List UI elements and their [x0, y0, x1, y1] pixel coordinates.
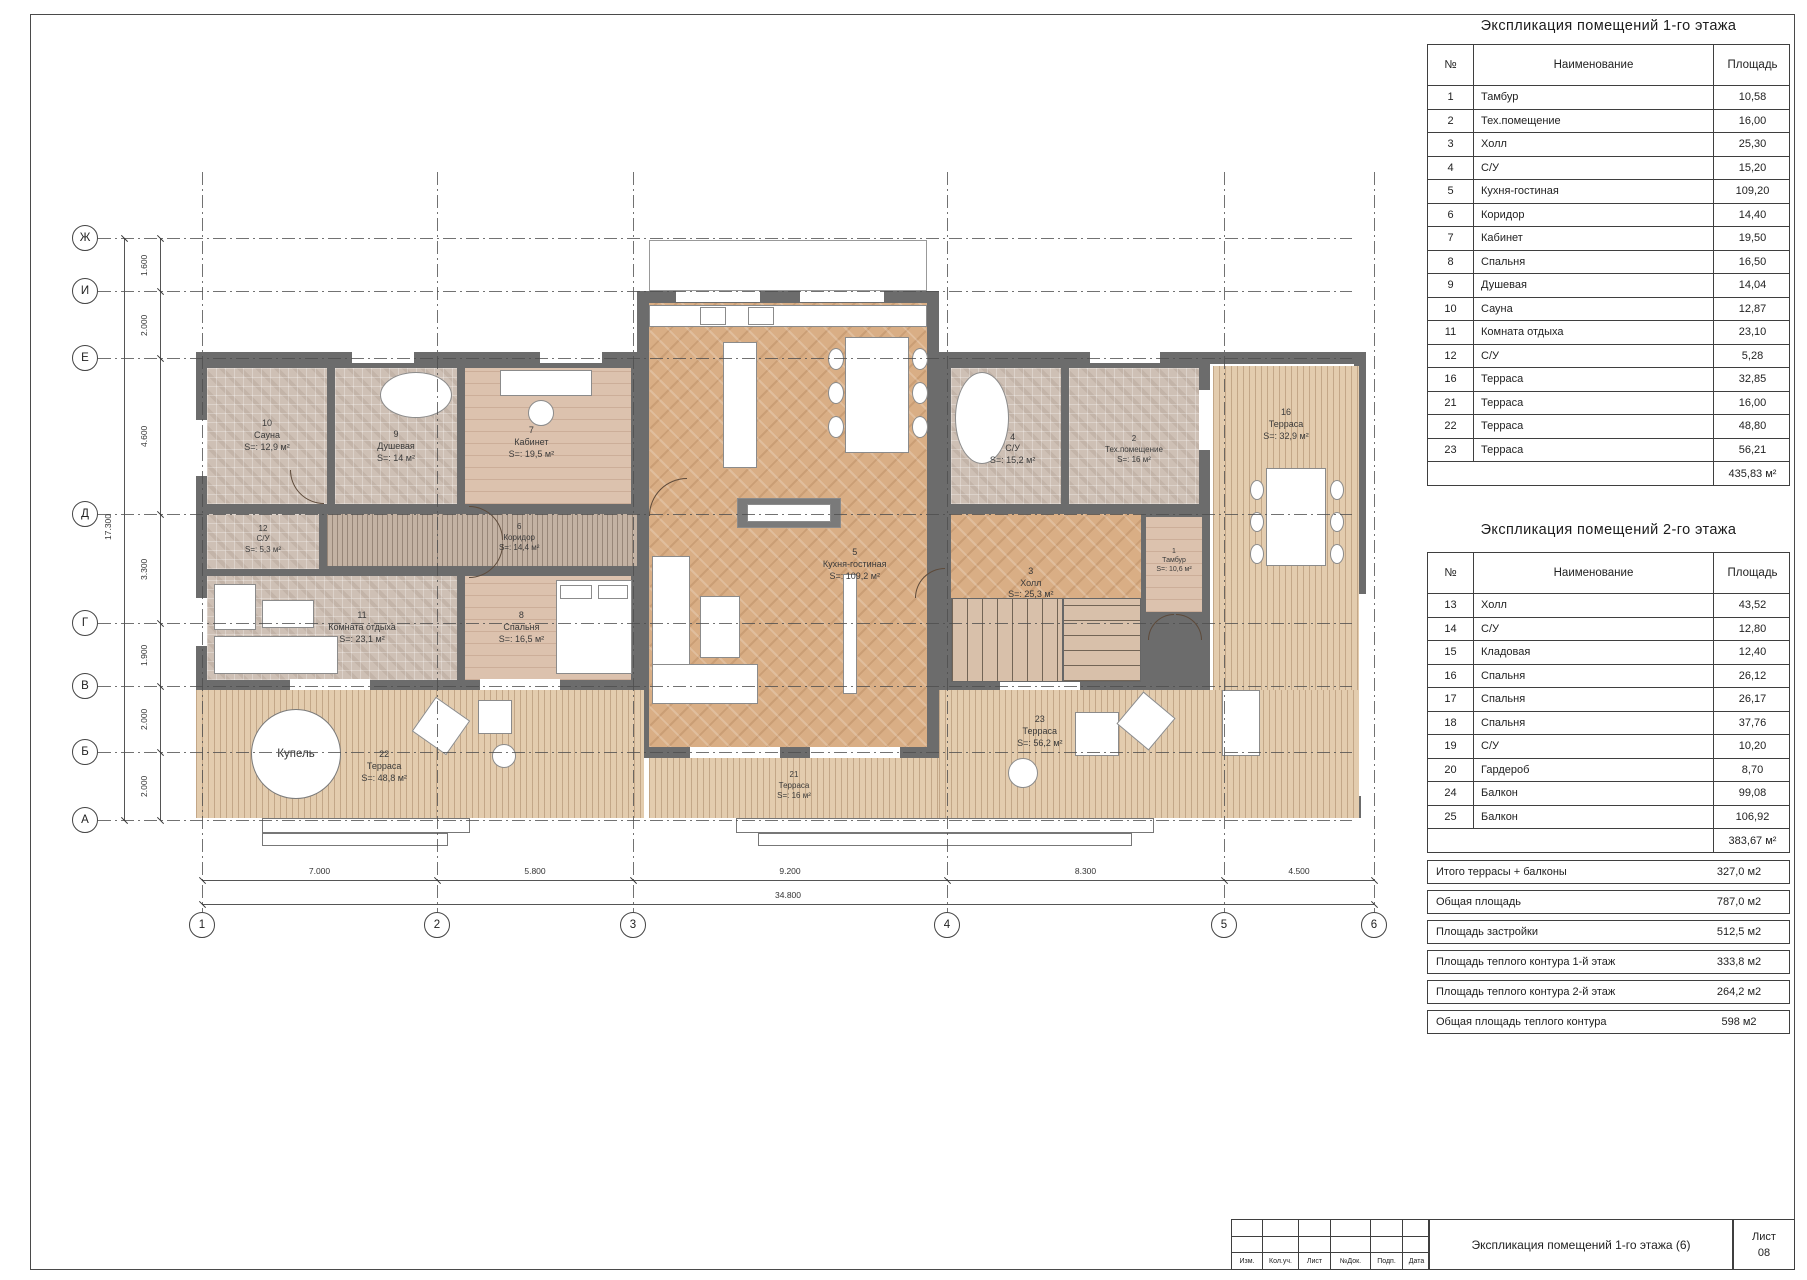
floor2-table: №НаименованиеПлощадь13Холл43,5214С/У12,8…: [1427, 552, 1790, 853]
cell-num: 6: [1428, 204, 1473, 227]
total-spacer: [1428, 829, 1713, 852]
table-row: 4С/У15,20: [1428, 156, 1789, 180]
table-row: 7Кабинет19,50: [1428, 226, 1789, 250]
table-row: 15Кладовая12,40: [1428, 640, 1789, 664]
floor2-total: 383,67 м²: [1713, 829, 1791, 852]
table-row: 20Гардероб8,70: [1428, 758, 1789, 782]
summary-row: Площадь застройки512,5 м2: [1427, 920, 1790, 944]
cell-area: 16,00: [1713, 110, 1791, 133]
axis-line-row-А: [98, 820, 1352, 821]
axis-line-row-И: [98, 291, 1352, 292]
header-cell: Наименование: [1473, 45, 1713, 85]
cell-num: 4: [1428, 157, 1473, 180]
axis-bubble-1: 1: [189, 912, 215, 938]
cell-name: С/У: [1473, 345, 1713, 368]
axis-line-row-Г: [98, 623, 1352, 624]
dim-line-bottom-total: [202, 904, 1374, 905]
cell-area: 109,20: [1713, 180, 1791, 203]
dim-line-left-total: [124, 238, 125, 820]
window-opening: [1199, 390, 1210, 450]
stamp-vline: [1298, 1220, 1299, 1253]
furniture: [652, 664, 758, 704]
furniture: [500, 370, 592, 396]
revision-stamp: Изм.Кол.уч.Лист№Док.Подп.Дата: [1231, 1219, 1429, 1270]
cell-area: 10,58: [1713, 86, 1791, 109]
cell-area: 26,12: [1713, 665, 1791, 688]
stamp-col-3: Лист: [1298, 1253, 1330, 1269]
cell-area: 26,17: [1713, 688, 1791, 711]
stamp-vline: [1402, 1220, 1403, 1253]
table-row: 6Коридор14,40: [1428, 203, 1789, 227]
table-header-row: №НаименованиеПлощадь: [1428, 45, 1789, 85]
axis-bubble-А: А: [72, 807, 98, 833]
axis-line-row-В: [98, 686, 1352, 687]
kupel-circle: Купель: [251, 709, 341, 799]
table-row: 12С/У5,28: [1428, 344, 1789, 368]
stamp-col-2: Кол.уч.: [1262, 1253, 1298, 1269]
cell-num: 21: [1428, 392, 1473, 415]
table-row: 3Холл25,30: [1428, 132, 1789, 156]
table-row: 25Балкон106,92: [1428, 805, 1789, 829]
dim-label-col: 9.200: [765, 866, 815, 876]
furniture: [492, 744, 516, 768]
furniture: [1330, 512, 1344, 532]
window-opening: [676, 291, 760, 302]
table-row: 17Спальня26,17: [1428, 687, 1789, 711]
cell-area: 23,10: [1713, 321, 1791, 344]
stamp-col-6: Дата: [1402, 1253, 1430, 1269]
furniture: [723, 342, 757, 468]
cell-name: С/У: [1473, 618, 1713, 641]
cell-name: Сауна: [1473, 298, 1713, 321]
cell-area: 25,30: [1713, 133, 1791, 156]
cell-num: 14: [1428, 618, 1473, 641]
dim-label-row: 2.000: [139, 770, 149, 802]
furniture: [747, 504, 831, 522]
cell-area: 10,20: [1713, 735, 1791, 758]
cell-area: 12,87: [1713, 298, 1791, 321]
dim-label-col: 4.500: [1274, 866, 1324, 876]
summary-row: Общая площадь787,0 м2: [1427, 890, 1790, 914]
table-row: 23Терраса56,21: [1428, 438, 1789, 462]
axis-line-row-Е: [98, 358, 1352, 359]
axis-bubble-Ж: Ж: [72, 225, 98, 251]
table-row: 18Спальня37,76: [1428, 711, 1789, 735]
doc-title: Экспликация помещений 1-го этажа (6): [1471, 1238, 1690, 1252]
sheet-number-box: Лист 08: [1733, 1219, 1795, 1270]
steps: [262, 833, 448, 846]
dim-label-row: 3.300: [139, 553, 149, 585]
cell-name: Кабинет: [1473, 227, 1713, 250]
furniture: [478, 700, 512, 734]
dim-total-row: 17.300: [103, 505, 113, 549]
axis-line-col-2: [437, 172, 438, 912]
table-row: 5Кухня-гостиная109,20: [1428, 179, 1789, 203]
floor1-total: 435,83 м²: [1713, 462, 1791, 485]
cell-area: 12,80: [1713, 618, 1791, 641]
table-row: 8Спальня16,50: [1428, 250, 1789, 274]
table-row: 22Терраса48,80: [1428, 414, 1789, 438]
stamp-col-1: Изм.: [1232, 1253, 1262, 1269]
floor1-table: №НаименованиеПлощадь1Тамбур10,582Тех.пом…: [1427, 44, 1790, 486]
table-row: 9Душевая14,04: [1428, 273, 1789, 297]
furniture: [1008, 758, 1038, 788]
dim-total-col: 34.800: [763, 890, 813, 900]
cell-num: 16: [1428, 368, 1473, 391]
table-row: 14С/У12,80: [1428, 617, 1789, 641]
dim-label-row: 4.600: [139, 420, 149, 452]
cell-num: 2: [1428, 110, 1473, 133]
furniture: [700, 307, 726, 325]
total-spacer: [1428, 462, 1713, 485]
furniture: [1266, 468, 1326, 566]
stamp-col-4: №Док.: [1330, 1253, 1370, 1269]
axis-bubble-4: 4: [934, 912, 960, 938]
table-row: 16Спальня26,12: [1428, 664, 1789, 688]
summary-value: 333,8 м2: [1689, 956, 1789, 968]
dim-label-row: 1.900: [139, 639, 149, 671]
axis-line-row-Д: [98, 514, 1352, 515]
window-opening: [290, 679, 370, 690]
cell-area: 56,21: [1713, 439, 1791, 462]
table-row: 24Балкон99,08: [1428, 781, 1789, 805]
summary-value: 598 м2: [1689, 1016, 1789, 1028]
furniture: [1330, 544, 1344, 564]
cell-num: 22: [1428, 415, 1473, 438]
stamp-col-5: Подп.: [1370, 1253, 1402, 1269]
summary-row: Площадь теплого контура 1-й этаж333,8 м2: [1427, 950, 1790, 974]
floor1-table-title: Экспликация помещений 1-го этажа: [1427, 18, 1790, 34]
cell-name: С/У: [1473, 157, 1713, 180]
summary-label: Площадь теплого контура 1-й этаж: [1428, 956, 1689, 968]
cell-name: Балкон: [1473, 806, 1713, 829]
summary-row: Площадь теплого контура 2-й этаж264,2 м2: [1427, 980, 1790, 1004]
cell-num: 5: [1428, 180, 1473, 203]
cell-area: 8,70: [1713, 759, 1791, 782]
summary-label: Итого террасы + балконы: [1428, 866, 1689, 878]
stamp-vline: [1330, 1220, 1331, 1253]
steps: [758, 833, 1132, 846]
deck-patch: [1213, 584, 1359, 690]
cell-num: 12: [1428, 345, 1473, 368]
axis-line-row-Ж: [98, 238, 1352, 239]
cell-area: 37,76: [1713, 712, 1791, 735]
cell-num: 20: [1428, 759, 1473, 782]
furniture: [380, 372, 452, 418]
dim-label-col: 5.800: [510, 866, 560, 876]
cell-name: Коридор: [1473, 204, 1713, 227]
table-total-row: 435,83 м²: [1428, 461, 1789, 485]
header-cell: №: [1428, 553, 1473, 593]
axis-bubble-Д: Д: [72, 501, 98, 527]
cell-area: 43,52: [1713, 594, 1791, 617]
table-row: 19С/У10,20: [1428, 734, 1789, 758]
cell-area: 16,50: [1713, 251, 1791, 274]
furniture: [912, 416, 928, 438]
sheet-label: Лист: [1752, 1231, 1776, 1243]
summary-row: Итого террасы + балконы327,0 м2: [1427, 860, 1790, 884]
cell-name: С/У: [1473, 735, 1713, 758]
porch: [649, 240, 927, 291]
cell-name: Гардероб: [1473, 759, 1713, 782]
cell-name: Терраса: [1473, 368, 1713, 391]
doc-title-box: Экспликация помещений 1-го этажа (6): [1429, 1219, 1733, 1270]
room-1: [1146, 517, 1202, 612]
dim-label-row: 2.000: [139, 309, 149, 341]
cell-num: 9: [1428, 274, 1473, 297]
axis-line-col-3: [633, 172, 634, 912]
cell-num: 7: [1428, 227, 1473, 250]
room-12: [207, 514, 319, 569]
furniture: [1250, 480, 1264, 500]
axis-bubble-5: 5: [1211, 912, 1237, 938]
cell-name: Спальня: [1473, 712, 1713, 735]
table-row: 10Сауна12,87: [1428, 297, 1789, 321]
cell-name: Терраса: [1473, 392, 1713, 415]
cell-num: 17: [1428, 688, 1473, 711]
cell-area: 106,92: [1713, 806, 1791, 829]
cell-area: 99,08: [1713, 782, 1791, 805]
axis-bubble-Е: Е: [72, 345, 98, 371]
table-row: 1Тамбур10,58: [1428, 85, 1789, 109]
furniture: [912, 348, 928, 370]
axis-line-col-6: [1374, 172, 1375, 912]
furniture: [748, 307, 774, 325]
axis-line-col-1: [202, 172, 203, 912]
cell-num: 11: [1428, 321, 1473, 344]
summary-label: Общая площадь: [1428, 896, 1689, 908]
table-row: 11Комната отдыха23,10: [1428, 320, 1789, 344]
dim-line-bottom: [202, 880, 1374, 881]
cell-num: 23: [1428, 439, 1473, 462]
cell-area: 12,40: [1713, 641, 1791, 664]
table-row: 21Терраса16,00: [1428, 391, 1789, 415]
cell-num: 16: [1428, 665, 1473, 688]
furniture: [1250, 544, 1264, 564]
cell-num: 3: [1428, 133, 1473, 156]
furniture: [845, 337, 909, 453]
furniture: [912, 382, 928, 404]
dim-label-row: 2.000: [139, 703, 149, 735]
cell-num: 13: [1428, 594, 1473, 617]
axis-bubble-3: 3: [620, 912, 646, 938]
cell-name: Балкон: [1473, 782, 1713, 805]
table-total-row: 383,67 м²: [1428, 828, 1789, 852]
furniture: [1250, 512, 1264, 532]
furniture: [649, 305, 927, 327]
room-21: [649, 758, 939, 818]
cell-num: 10: [1428, 298, 1473, 321]
cell-name: Спальня: [1473, 688, 1713, 711]
cell-num: 15: [1428, 641, 1473, 664]
cell-name: Тех.помещение: [1473, 110, 1713, 133]
window-opening: [800, 291, 884, 302]
furniture: [560, 585, 592, 599]
table-row: 13Холл43,52: [1428, 593, 1789, 617]
cell-area: 15,20: [1713, 157, 1791, 180]
cell-name: Спальня: [1473, 251, 1713, 274]
floor2-table-title: Экспликация помещений 2-го этажа: [1427, 522, 1790, 538]
furniture: [214, 636, 338, 674]
header-cell: Наименование: [1473, 553, 1713, 593]
stamp-vline: [1232, 1220, 1233, 1253]
summary-label: Общая площадь теплого контура: [1428, 1016, 1689, 1028]
summary-value: 264,2 м2: [1689, 986, 1789, 998]
cell-area: 19,50: [1713, 227, 1791, 250]
sheet-number: 08: [1758, 1247, 1770, 1259]
furniture: [828, 382, 844, 404]
cell-num: 1: [1428, 86, 1473, 109]
cell-num: 25: [1428, 806, 1473, 829]
cell-area: 14,40: [1713, 204, 1791, 227]
furniture: [1222, 690, 1260, 756]
cell-area: 16,00: [1713, 392, 1791, 415]
summary-label: Площадь теплого контура 2-й этаж: [1428, 986, 1689, 998]
window-opening: [480, 679, 560, 690]
drawing-sheet: Купель10 Сауна S=: 12,9 м²9 Душевая S=: …: [0, 0, 1807, 1280]
cell-area: 5,28: [1713, 345, 1791, 368]
staircase: [951, 598, 1063, 682]
header-cell: №: [1428, 45, 1473, 85]
cell-name: Кухня-гостиная: [1473, 180, 1713, 203]
cell-num: 24: [1428, 782, 1473, 805]
furniture: [700, 596, 740, 658]
stamp-vline: [1262, 1220, 1263, 1253]
header-cell: Площадь: [1713, 45, 1791, 85]
furniture: [955, 372, 1009, 464]
summary-row: Общая площадь теплого контура598 м2: [1427, 1010, 1790, 1034]
cell-area: 32,85: [1713, 368, 1791, 391]
table-row: 2Тех.помещение16,00: [1428, 109, 1789, 133]
header-cell: Площадь: [1713, 553, 1791, 593]
cell-name: Терраса: [1473, 439, 1713, 462]
dim-line-left: [160, 238, 161, 820]
table-header-row: №НаименованиеПлощадь: [1428, 553, 1789, 593]
summary-value: 787,0 м2: [1689, 896, 1789, 908]
axis-bubble-2: 2: [424, 912, 450, 938]
furniture: [843, 574, 857, 694]
cell-num: 19: [1428, 735, 1473, 758]
dim-label-col: 7.000: [295, 866, 345, 876]
cell-name: Комната отдыха: [1473, 321, 1713, 344]
dim-label-row: 1.600: [139, 249, 149, 281]
furniture: [528, 400, 554, 426]
cell-name: Холл: [1473, 594, 1713, 617]
furniture: [598, 585, 628, 599]
furniture: [1330, 480, 1344, 500]
cell-num: 8: [1428, 251, 1473, 274]
summary-label: Площадь застройки: [1428, 926, 1689, 938]
cell-area: 14,04: [1713, 274, 1791, 297]
cell-area: 48,80: [1713, 415, 1791, 438]
axis-line-col-5: [1224, 172, 1225, 912]
summary-value: 512,5 м2: [1689, 926, 1789, 938]
axis-bubble-Б: Б: [72, 739, 98, 765]
cell-name: Душевая: [1473, 274, 1713, 297]
table-row: 16Терраса32,85: [1428, 367, 1789, 391]
cell-name: Тамбур: [1473, 86, 1713, 109]
cell-num: 18: [1428, 712, 1473, 735]
axis-bubble-В: В: [72, 673, 98, 699]
summary-value: 327,0 м2: [1689, 866, 1789, 878]
axis-bubble-Г: Г: [72, 610, 98, 636]
axis-line-row-Б: [98, 752, 1352, 753]
cell-name: Холл: [1473, 133, 1713, 156]
furniture: [828, 348, 844, 370]
room-2: [1069, 368, 1199, 504]
axis-bubble-6: 6: [1361, 912, 1387, 938]
dim-label-col: 8.300: [1061, 866, 1111, 876]
staircase: [1063, 598, 1141, 682]
axis-line-col-4: [947, 172, 948, 912]
cell-name: Кладовая: [1473, 641, 1713, 664]
furniture: [1075, 712, 1119, 756]
cell-name: Терраса: [1473, 415, 1713, 438]
stamp-vline: [1370, 1220, 1371, 1253]
cell-name: Спальня: [1473, 665, 1713, 688]
axis-bubble-И: И: [72, 278, 98, 304]
furniture: [828, 416, 844, 438]
